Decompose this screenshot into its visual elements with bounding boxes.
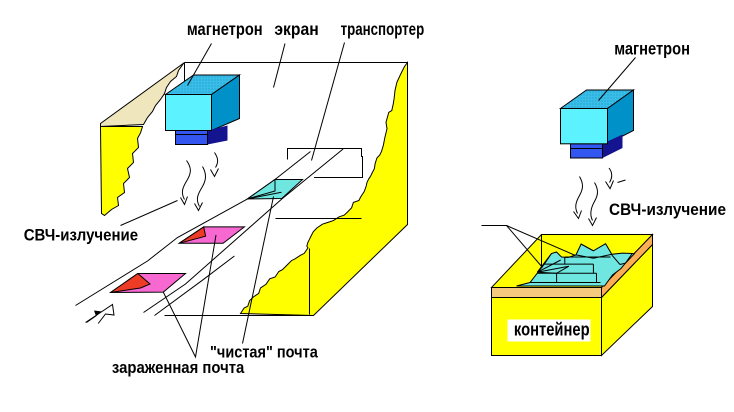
svg-text:транспортер: транспортер bbox=[341, 19, 425, 39]
svg-text:зараженная почта: зараженная почта bbox=[112, 358, 245, 377]
svg-text:СВЧ-излучение: СВЧ-излучение bbox=[609, 201, 726, 219]
svg-text:контейнер: контейнер bbox=[514, 320, 590, 340]
svg-text:экран: экран bbox=[274, 19, 318, 39]
svg-text:СВЧ-излучение: СВЧ-излучение bbox=[24, 227, 138, 245]
svg-text:магнетрон: магнетрон bbox=[187, 19, 263, 39]
svg-text:магнетрон: магнетрон bbox=[614, 39, 690, 59]
